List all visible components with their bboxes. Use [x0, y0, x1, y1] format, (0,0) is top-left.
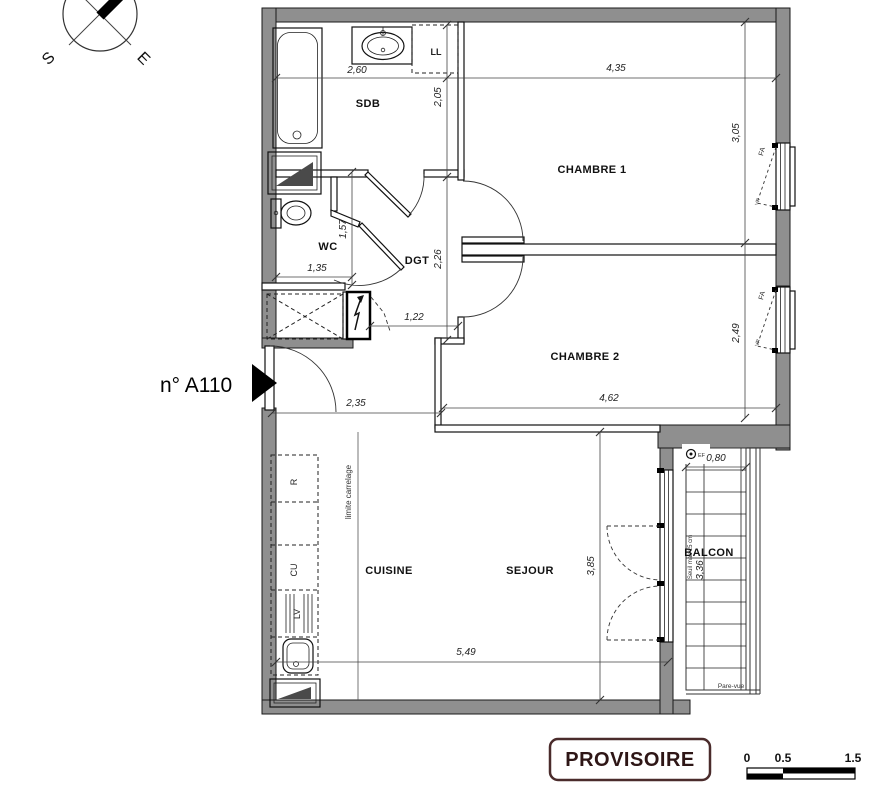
dim-balcon-width: 0,80 [706, 453, 726, 464]
dim-sdb-depth: 2,05 [433, 87, 444, 108]
compass-south-label: S [39, 49, 59, 69]
room-label-cuisine: CUISINE [365, 565, 412, 577]
privacy-screen-label: Pare-vue [718, 683, 745, 690]
north-arrow-icon [100, 0, 132, 16]
scale-15-label: 1.5 [845, 751, 862, 765]
dim-dgt-width: 1,22 [404, 312, 424, 323]
window-chambre1: FA VR [754, 143, 795, 210]
closet-icon [267, 294, 343, 339]
tiling-limit-label: limite carrelage [344, 464, 353, 519]
scale-bar: 0 0.5 1.5 [744, 751, 862, 779]
room-label-chambre2: CHAMBRE 2 [551, 351, 620, 363]
chambre1-door [462, 181, 524, 243]
window1-fa-label: FA [758, 146, 767, 156]
utility-box2-icon [270, 679, 320, 707]
window2-fa-label: FA [758, 290, 767, 300]
kitchen-counter: R CU LV [271, 455, 318, 675]
dim-wc-width: 1,35 [307, 263, 327, 274]
dim-chambre2-width: 4,62 [599, 393, 619, 404]
stamp-label: PROVISOIRE [565, 749, 694, 771]
scale-05-label: 0.5 [775, 751, 792, 765]
fridge-label: R [289, 478, 299, 485]
chambre2-door [462, 256, 524, 317]
dim-chambre1-depth: 3,05 [731, 123, 742, 143]
hob-label: CU [289, 564, 299, 577]
dishwasher-label: LV [292, 609, 302, 619]
dim-chambre1-width: 4,35 [606, 63, 626, 74]
unit-number-label: n° A110 [160, 374, 232, 397]
room-label-chambre1: CHAMBRE 1 [558, 164, 627, 176]
washing-machine-icon: LL [412, 25, 458, 73]
dim-dgt-depth: 2,26 [433, 249, 444, 270]
floor-plan-svg: S E FA VR [0, 0, 895, 800]
provisional-stamp: PROVISOIRE [550, 739, 710, 780]
room-label-balcon: BALCON [684, 547, 733, 559]
dim-entree-width: 2,35 [345, 398, 366, 409]
room-label-sdb: SDB [356, 98, 380, 110]
dim-wc-depth: 1,57 [338, 219, 349, 239]
window1-vr-label: VR [754, 197, 762, 206]
tiling-limit-line: limite carrelage [344, 432, 358, 700]
dim-sdb-width: 2,60 [346, 65, 367, 76]
washing-machine-label: LL [431, 47, 442, 57]
cold-water-tap-label: EF [698, 453, 706, 459]
window2-vr-label: VR [754, 338, 762, 347]
balcony-door [607, 468, 673, 642]
electrical-panel-icon [347, 292, 390, 339]
dim-chambre2-depth: 2,49 [731, 323, 742, 344]
compass-rose: S E [39, 0, 153, 69]
sdb-door [365, 172, 424, 217]
floor-plan-page: S E FA VR [0, 0, 895, 800]
unit-marker: n° A110 [160, 364, 277, 402]
dim-sejour-width: 5,49 [456, 647, 476, 658]
kitchen-sink-icon [283, 639, 313, 673]
compass-east-label: E [133, 49, 153, 69]
balcony-deck: EF Seuil max 15 cm Pare-vue [682, 444, 760, 694]
room-label-sejour: SEJOUR [506, 565, 554, 577]
washbasin-icon [352, 27, 412, 64]
scale-0-label: 0 [744, 751, 751, 765]
window-chambre2: FA VR [754, 287, 795, 353]
dim-sejour-depth: 3,85 [586, 556, 597, 576]
entry-door [265, 346, 336, 412]
bathtub-icon [273, 28, 322, 148]
toilet-icon [271, 199, 311, 228]
dim-balcon-depth: 3,36 [695, 560, 706, 580]
room-label-dgt: DGT [405, 255, 429, 267]
room-label-wc: WC [318, 241, 337, 253]
